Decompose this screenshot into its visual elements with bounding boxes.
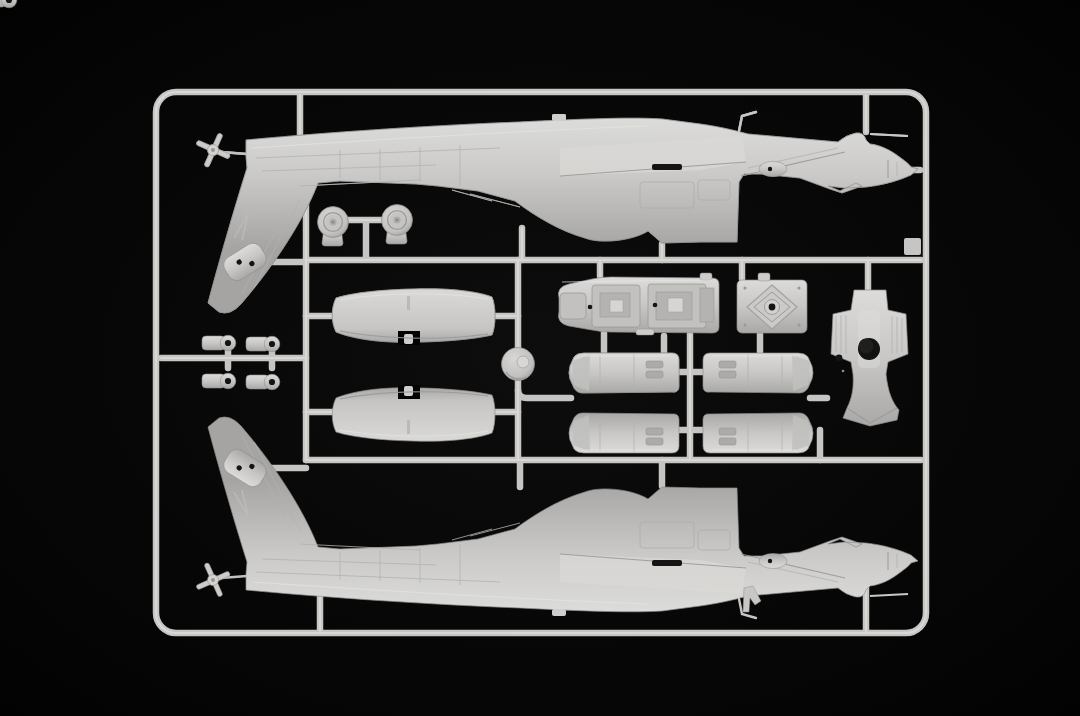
tub-hole-rear	[653, 303, 658, 308]
mast-small-hole	[836, 355, 843, 362]
disc-boss	[517, 356, 529, 368]
tub-hole-front	[588, 305, 593, 310]
plate-bore	[769, 304, 776, 311]
part-nacelle-4	[703, 413, 813, 453]
part-transmission-plate	[737, 273, 807, 333]
part-nacelle-3	[569, 413, 679, 453]
part-stub-wing-1	[332, 289, 495, 345]
part-nacelle-1	[569, 353, 679, 393]
part-nacelle-2	[703, 353, 813, 393]
sprue-photo	[0, 0, 1080, 716]
frame-tab	[904, 238, 921, 255]
part-cockpit-tub	[558, 273, 719, 335]
part-stub-wing-2	[332, 385, 495, 441]
part-rotor-head-disc	[502, 348, 535, 381]
tub-nose-tongue	[560, 293, 586, 319]
